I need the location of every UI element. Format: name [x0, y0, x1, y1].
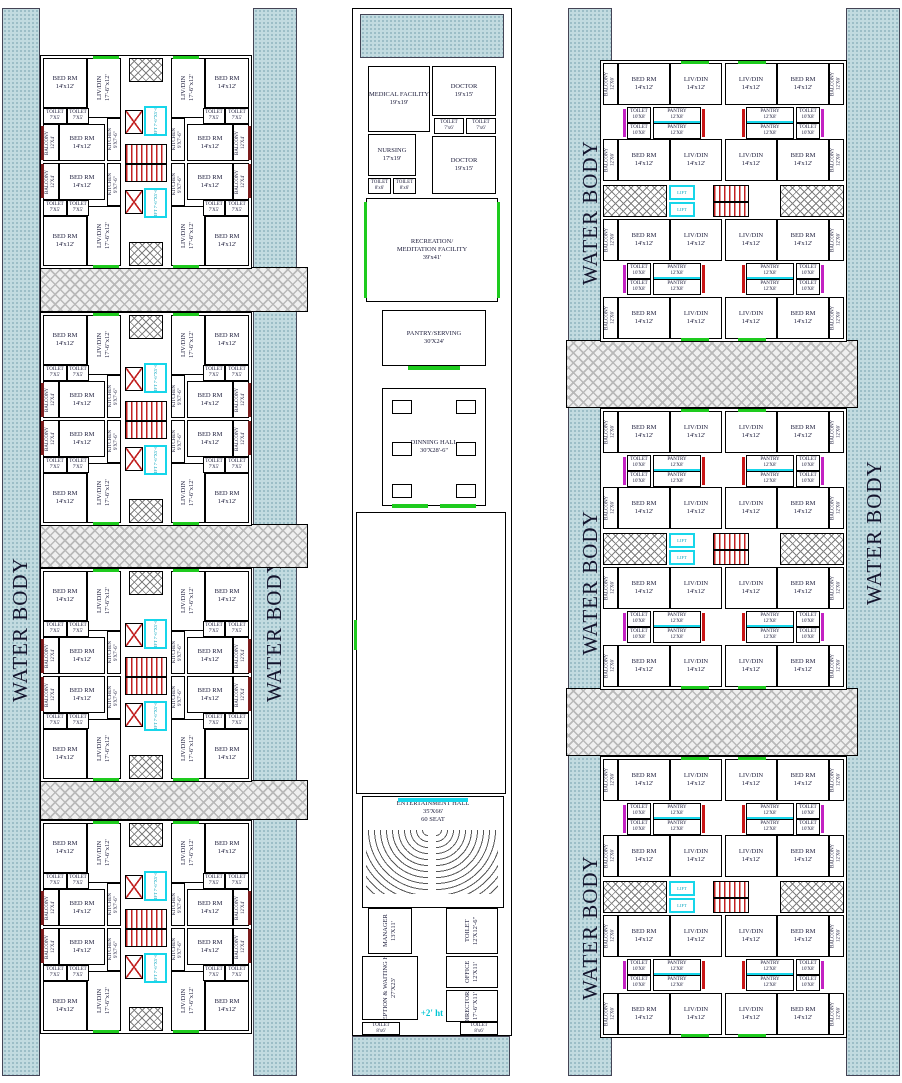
door-mark: [173, 313, 199, 316]
liv-din: LIV/DIN14'x12': [725, 487, 777, 529]
lobby-hatch: [780, 185, 844, 217]
lobby-hatch: [129, 1007, 163, 1031]
water-strip-left: [2, 8, 40, 1076]
wall-mark: [742, 109, 745, 137]
bed-rm: BED RM14'x12': [59, 637, 105, 674]
bed-rm: BED RM14'x12': [618, 915, 670, 957]
corridor-hatch: [566, 340, 858, 408]
lift: LIFT: [669, 898, 695, 913]
door-mark: [392, 504, 428, 508]
door-mark: [738, 61, 766, 64]
toilet: TOILET7'X5': [225, 457, 249, 473]
wall-mark: [623, 961, 626, 989]
bed-rm: BED RM14'x12': [59, 889, 105, 926]
kitchen: KITCHEN9'X7'-6": [171, 883, 185, 926]
kitchen: KITCHEN9'X7'-6": [171, 375, 185, 418]
lobby-hatch: [780, 881, 844, 913]
liv-din: LIV/DIN17'-6"x12': [171, 315, 205, 375]
bed-rm: BED RM14'x12': [59, 928, 105, 965]
shaft: [125, 703, 143, 727]
corridor-hatch: [40, 780, 308, 820]
dining-table: [456, 484, 476, 498]
door-mark: [681, 686, 709, 689]
dining-table: [392, 484, 412, 498]
bed-rm: BED RM14'x12': [777, 411, 829, 453]
liv-din: LIV/DIN14'x12': [725, 219, 777, 261]
liv-din: LIV/DIN14'x12': [725, 63, 777, 105]
reception-waiting-hall: RECEPTION & WAITING HALL27'X23': [362, 956, 418, 1020]
stage-mark: [398, 798, 468, 802]
balcony: BALCONY12'X4': [233, 420, 249, 457]
bed-rm: BED RM14'x12': [205, 216, 249, 266]
bed-rm: BED RM14'x12': [43, 571, 87, 621]
bed-rm: BED RM14'x12': [618, 63, 670, 105]
toilet: TOILET8'x6': [393, 178, 416, 194]
balcony-wall: [41, 383, 44, 417]
door-mark: [93, 265, 119, 268]
toilet: TOILET7'X5': [225, 200, 249, 216]
liv-din: LIV/DIN14'x12': [725, 411, 777, 453]
counter: [747, 625, 793, 627]
kitchen: KITCHEN9'X7'-6": [107, 883, 121, 926]
door-mark: [681, 338, 709, 341]
bed-rm: BED RM14'x12': [205, 473, 249, 523]
toilet: TOILET7'X5': [43, 365, 67, 381]
bed-rm: BED RM14'x12': [187, 163, 233, 200]
liv-din: LIV/DIN14'x12': [725, 759, 777, 801]
bed-rm: BED RM14'x12': [777, 835, 829, 877]
liv-din: LIV/DIN17'-6"x12': [87, 571, 121, 631]
pantry: PANTRY12'X8': [746, 123, 794, 139]
balcony-wall: [41, 421, 44, 455]
bed-rm: BED RM14'x12': [618, 835, 670, 877]
dining-table: [392, 400, 412, 414]
lobby-hatch: [603, 533, 667, 565]
staircase: [125, 909, 167, 947]
liv-din: LIV/DIN17'-6"x12': [171, 206, 205, 266]
toilet: TOILET7'X5': [67, 457, 89, 473]
counter: [747, 277, 793, 279]
toilet: TOILET10'X8': [796, 107, 820, 123]
manager: MANAGER13'X11': [368, 908, 412, 954]
door-mark: [681, 757, 709, 760]
shaft: [125, 110, 143, 134]
balcony: BALCONY12'X6': [603, 139, 618, 181]
bed-rm: BED RM14'x12': [43, 315, 87, 365]
door-mark: [173, 265, 199, 268]
toilet: TOILET7'X5': [43, 965, 67, 981]
bed-rm: BED RM14'x12': [187, 928, 233, 965]
counter: [747, 973, 793, 975]
door-mark: [738, 1034, 766, 1037]
toilet: TOILET7'X5': [43, 108, 67, 124]
counter: [654, 469, 700, 471]
liv-din: LIV/DIN14'x12': [670, 759, 722, 801]
wall-mark: [623, 613, 626, 641]
toilet: TOILET8'x6': [362, 1022, 400, 1035]
bed-rm: BED RM14'x12': [777, 297, 829, 339]
kitchen: KITCHEN9'X7'-6": [171, 420, 185, 463]
door-mark: [173, 1030, 199, 1033]
bed-rm: BED RM14'x12': [43, 823, 87, 873]
counter: [654, 625, 700, 627]
door-mark: [681, 1034, 709, 1037]
toilet: TOILET10'X8': [627, 975, 651, 991]
lift: LIFT: [669, 550, 695, 565]
door-mark: [93, 56, 119, 59]
bed-rm: BED RM14'x12': [59, 163, 105, 200]
toilet: TOILET7'X5': [43, 200, 67, 216]
wall-mark: [702, 961, 705, 989]
liv-din: LIV/DIN14'x12': [670, 915, 722, 957]
balcony: BALCONY12'X6': [829, 487, 844, 529]
multipurpose-hall: [356, 512, 506, 794]
balcony: BALCONY12'X6': [603, 915, 618, 957]
toilet: TOILET7'x6': [434, 118, 464, 134]
staircase: [125, 657, 167, 695]
balcony: BALCONY12'X4': [233, 381, 249, 418]
liv-din: LIV/DIN17'-6"x12': [87, 719, 121, 779]
balcony: BALCONY12'X6': [603, 219, 618, 261]
lift: LIFT: [669, 533, 695, 548]
toilet: TOILET7'X5': [225, 713, 249, 729]
bed-rm: BED RM14'x12': [205, 729, 249, 779]
counter: [654, 277, 700, 279]
door-mark: [173, 778, 199, 781]
staircase: [713, 185, 749, 217]
dining-table: [392, 442, 412, 456]
wall-mark: [742, 265, 745, 293]
bed-rm: BED RM14'x12': [618, 567, 670, 609]
balcony-wall: [41, 891, 44, 925]
kitchen: KITCHEN9'X7'-6": [107, 118, 121, 161]
lobby-hatch: [129, 499, 163, 523]
bed-rm: BED RM14'x12': [777, 139, 829, 181]
pantry: PANTRY12'X8': [746, 471, 794, 487]
bed-rm: BED RM14'x12': [618, 993, 670, 1035]
corridor-hatch: [40, 267, 308, 312]
toilet: TOILET10'X8': [627, 611, 651, 627]
toilet: TOILET7'X5': [203, 457, 225, 473]
wall-mark: [821, 613, 824, 641]
balcony-wall: [248, 164, 251, 198]
door-mark: [93, 821, 119, 824]
toilet: TOILET7'X5': [43, 621, 67, 637]
balcony: BALCONY12'X4': [43, 889, 59, 926]
toilet: TOILET7'X5': [225, 965, 249, 981]
shaft: [125, 190, 143, 214]
shaft: [125, 447, 143, 471]
entry-level-note: +2' ht: [414, 1006, 450, 1020]
toilet: TOILET10'X8': [627, 263, 651, 279]
toilet: TOILET8'x6': [460, 1022, 498, 1035]
lift: LIFT 7'-6"X5'-6": [144, 701, 167, 731]
balcony: BALCONY12'X6': [603, 835, 618, 877]
balcony: BALCONY12'X6': [603, 487, 618, 529]
kitchen: KITCHEN9'X7'-6": [107, 163, 121, 206]
wall-mark: [702, 457, 705, 485]
toilet: TOILET7'X5': [203, 873, 225, 889]
toilet: TOILET10'X8': [796, 975, 820, 991]
floor-plan-canvas: WATER BODY WATER BODY WATER BODY WATER B…: [0, 0, 902, 1083]
door-mark: [173, 522, 199, 525]
liv-din: LIV/DIN17'-6"x12': [87, 971, 121, 1031]
toilet: TOILET7'X5': [203, 713, 225, 729]
lift: LIFT 7'-6"X5'-6": [144, 188, 167, 218]
liv-din: LIV/DIN17'-6"x12': [171, 571, 205, 631]
wall-mark: [821, 109, 824, 137]
kitchen: KITCHEN9'X7'-6": [107, 375, 121, 418]
counter: [654, 817, 700, 819]
bed-rm: BED RM14'x12': [59, 124, 105, 161]
bed-rm: BED RM14'x12': [777, 993, 829, 1035]
wall-mark: [623, 457, 626, 485]
door-mark: [738, 757, 766, 760]
toilet: TOILET10'X8': [627, 819, 651, 835]
wall-mark: [623, 265, 626, 293]
bed-rm: BED RM14'x12': [59, 676, 105, 713]
pantry-serving: PANTRY/SERVING30'X24': [382, 310, 486, 366]
water-block: [360, 14, 504, 58]
bed-rm: BED RM14'x12': [187, 637, 233, 674]
liv-din: LIV/DIN14'x12': [725, 139, 777, 181]
pantry: PANTRY12'X8': [653, 975, 701, 991]
liv-din: LIV/DIN14'x12': [670, 993, 722, 1035]
wall-mark: [623, 109, 626, 137]
wall-mark: [742, 457, 745, 485]
wall-mark: [742, 613, 745, 641]
wall-mark: [702, 805, 705, 833]
bed-rm: BED RM14'x12': [43, 58, 87, 108]
water-body-label: WATER BODY: [8, 545, 33, 715]
liv-din: LIV/DIN14'x12': [670, 645, 722, 687]
liv-din: LIV/DIN14'x12': [670, 219, 722, 261]
balcony: BALCONY12'X4': [233, 928, 249, 965]
balcony-wall: [41, 164, 44, 198]
toilet: TOILET7'X5': [43, 873, 67, 889]
toilet: TOILET10'X8': [796, 959, 820, 975]
door-mark: [354, 620, 357, 650]
liv-din: LIV/DIN17'-6"x12': [171, 58, 205, 118]
toilet: TOILET10'X8': [796, 263, 820, 279]
bed-rm: BED RM14'x12': [777, 915, 829, 957]
lift: LIFT: [669, 202, 695, 217]
bed-rm: BED RM14'x12': [187, 676, 233, 713]
counter: [747, 469, 793, 471]
liv-din: LIV/DIN14'x12': [670, 139, 722, 181]
liv-din: LIV/DIN17'-6"x12': [171, 719, 205, 779]
toilet: TOILET7'X5': [225, 621, 249, 637]
toilet: TOILET7'X5': [67, 713, 89, 729]
door-mark: [738, 338, 766, 341]
toilet: TOILET7'X5': [203, 965, 225, 981]
toilet: TOILET10'X8': [627, 123, 651, 139]
balcony: BALCONY12'X6': [829, 993, 844, 1035]
lobby-hatch: [603, 185, 667, 217]
door-mark: [173, 56, 199, 59]
toilet: TOILET7'X5': [225, 365, 249, 381]
balcony-wall: [248, 677, 251, 711]
bed-rm: BED RM14'x12': [777, 219, 829, 261]
toilet: TOILET10'X8': [627, 471, 651, 487]
bed-rm: BED RM14'x12': [618, 139, 670, 181]
toilet: TOILET7'X5': [67, 873, 89, 889]
staircase: [713, 881, 749, 913]
kitchen: KITCHEN9'X7'-6": [171, 163, 185, 206]
lift: LIFT 7'-6"X5'-6": [144, 619, 167, 649]
balcony: BALCONY12'X4': [43, 637, 59, 674]
pantry: PANTRY12'X8': [746, 627, 794, 643]
bed-rm: BED RM14'x12': [43, 473, 87, 523]
lift: LIFT 7'-6"X5'-6": [144, 445, 167, 475]
liv-din: LIV/DIN14'x12': [725, 645, 777, 687]
pantry: PANTRY12'X8': [746, 279, 794, 295]
lobby-hatch: [129, 571, 163, 595]
kitchen: KITCHEN9'X7'-6": [107, 928, 121, 971]
counter: [747, 817, 793, 819]
toilet: TOILET10'X8': [627, 959, 651, 975]
liv-din: LIV/DIN17'-6"x12': [171, 823, 205, 883]
balcony-wall: [248, 639, 251, 673]
seating-rows: [436, 830, 498, 894]
balcony: BALCONY12'X4': [233, 889, 249, 926]
left-cluster: BED RM14'x12'LIV/DIN17'-6"x12'TOILET7'X5…: [40, 312, 252, 526]
balcony: BALCONY12'X6': [603, 63, 618, 105]
pantry: PANTRY12'X8': [653, 627, 701, 643]
door-mark: [93, 778, 119, 781]
liv-din: LIV/DIN14'x12': [670, 487, 722, 529]
bed-rm: BED RM14'x12': [777, 567, 829, 609]
shaft: [125, 623, 143, 647]
wall-mark: [821, 265, 824, 293]
bed-rm: BED RM14'x12': [777, 645, 829, 687]
kitchen: KITCHEN9'X7'-6": [171, 928, 185, 971]
balcony-wall: [41, 929, 44, 963]
liv-din: LIV/DIN14'x12': [670, 567, 722, 609]
lobby-hatch: [129, 823, 163, 847]
bed-rm: BED RM14'x12': [59, 420, 105, 457]
lobby-hatch: [603, 881, 667, 913]
liv-din: LIV/DIN14'x12': [670, 411, 722, 453]
pantry: PANTRY12'X8': [653, 279, 701, 295]
bed-rm: BED RM14'x12': [187, 124, 233, 161]
toilet: TOILET10'X8': [627, 803, 651, 819]
toilet: TOILET10'X8': [796, 803, 820, 819]
wall-mark: [623, 805, 626, 833]
toilet: TOILET7'X5': [225, 873, 249, 889]
right-cluster: BALCONY12'X6'BED RM14'x12'LIV/DIN14'x12'…: [600, 756, 847, 1038]
balcony: BALCONY12'X4': [233, 124, 249, 161]
left-cluster: BED RM14'x12'LIV/DIN17'-6"x12'TOILET7'X5…: [40, 820, 252, 1034]
toilet: TOILET10'X8': [796, 819, 820, 835]
liv-din: LIV/DIN14'x12': [725, 297, 777, 339]
balcony: BALCONY12'X4': [43, 163, 59, 200]
door-mark: [93, 522, 119, 525]
liv-din: LIV/DIN14'x12': [725, 567, 777, 609]
toilet: TOILET12'X12'-6": [446, 908, 498, 954]
bed-rm: BED RM14'x12': [618, 411, 670, 453]
door-mark: [408, 366, 460, 370]
pantry: PANTRY12'X8': [746, 975, 794, 991]
recreation-meditation-facility: RECREATION/MEDITATION FACILITY39'x41': [366, 198, 498, 302]
bed-rm: BED RM14'x12': [187, 420, 233, 457]
balcony: BALCONY12'X4': [233, 637, 249, 674]
lobby-hatch: [129, 242, 163, 266]
door-mark: [681, 409, 709, 412]
pantry: PANTRY12'X8': [653, 471, 701, 487]
shaft: [125, 367, 143, 391]
bed-rm: BED RM14'x12': [205, 315, 249, 365]
bed-rm: BED RM14'x12': [187, 889, 233, 926]
kitchen: KITCHEN9'X7'-6": [107, 676, 121, 719]
pantry: PANTRY12'X8': [653, 819, 701, 835]
medical-facility: MEDICAL FACILITY19'x19': [368, 66, 430, 132]
staircase: [713, 533, 749, 565]
balcony: BALCONY12'X6': [829, 411, 844, 453]
bed-rm: BED RM14'x12': [618, 219, 670, 261]
door-mark: [681, 61, 709, 64]
bed-rm: BED RM14'x12': [43, 216, 87, 266]
balcony: BALCONY12'X6': [603, 993, 618, 1035]
balcony-wall: [248, 421, 251, 455]
balcony: BALCONY12'X6': [829, 835, 844, 877]
toilet: TOILET7'X5': [43, 457, 67, 473]
bed-rm: BED RM14'x12': [777, 487, 829, 529]
lift: LIFT: [669, 881, 695, 896]
lift: LIFT: [669, 185, 695, 200]
door-mark: [738, 686, 766, 689]
balcony: BALCONY12'X6': [829, 915, 844, 957]
toilet: TOILET10'X8': [796, 455, 820, 471]
balcony: BALCONY12'X6': [603, 567, 618, 609]
toilet: TOILET7'X5': [203, 621, 225, 637]
balcony: BALCONY12'X6': [829, 297, 844, 339]
balcony: BALCONY12'X6': [829, 63, 844, 105]
toilet: TOILET10'X8': [796, 627, 820, 643]
balcony: BALCONY12'X6': [829, 759, 844, 801]
nursing: NURSING17'x19': [368, 134, 416, 176]
liv-din: LIV/DIN17'-6"x12': [87, 315, 121, 375]
left-cluster: BED RM14'x12'LIV/DIN17'-6"x12'TOILET7'X5…: [40, 55, 252, 269]
balcony: BALCONY12'X4': [43, 420, 59, 457]
bed-rm: BED RM14'x12': [205, 571, 249, 621]
balcony-wall: [248, 929, 251, 963]
toilet: TOILET10'X8': [796, 279, 820, 295]
liv-din: LIV/DIN14'x12': [725, 993, 777, 1035]
balcony: BALCONY12'X6': [603, 297, 618, 339]
balcony: BALCONY12'X6': [829, 139, 844, 181]
pantry: PANTRY12'X8': [653, 123, 701, 139]
toilet: TOILET8'x6': [368, 178, 391, 194]
toilet: TOILET7'X5': [203, 365, 225, 381]
toilet: TOILET7'X5': [67, 621, 89, 637]
liv-din: LIV/DIN17'-6"x12': [171, 971, 205, 1031]
bed-rm: BED RM14'x12': [777, 63, 829, 105]
door-mark: [93, 569, 119, 572]
liv-din: LIV/DIN17'-6"x12': [87, 463, 121, 523]
balcony: BALCONY12'X4': [43, 381, 59, 418]
bed-rm: BED RM14'x12': [205, 823, 249, 873]
door-mark: [93, 313, 119, 316]
bed-rm: BED RM14'x12': [43, 729, 87, 779]
toilet: TOILET7'X5': [67, 108, 89, 124]
toilet: TOILET10'X8': [627, 455, 651, 471]
bed-rm: BED RM14'x12': [205, 981, 249, 1031]
lobby-hatch: [780, 533, 844, 565]
door-mark: [440, 504, 476, 508]
left-cluster: BED RM14'x12'LIV/DIN17'-6"x12'TOILET7'X5…: [40, 568, 252, 782]
lift: LIFT 7'-6"X5'-6": [144, 871, 167, 901]
